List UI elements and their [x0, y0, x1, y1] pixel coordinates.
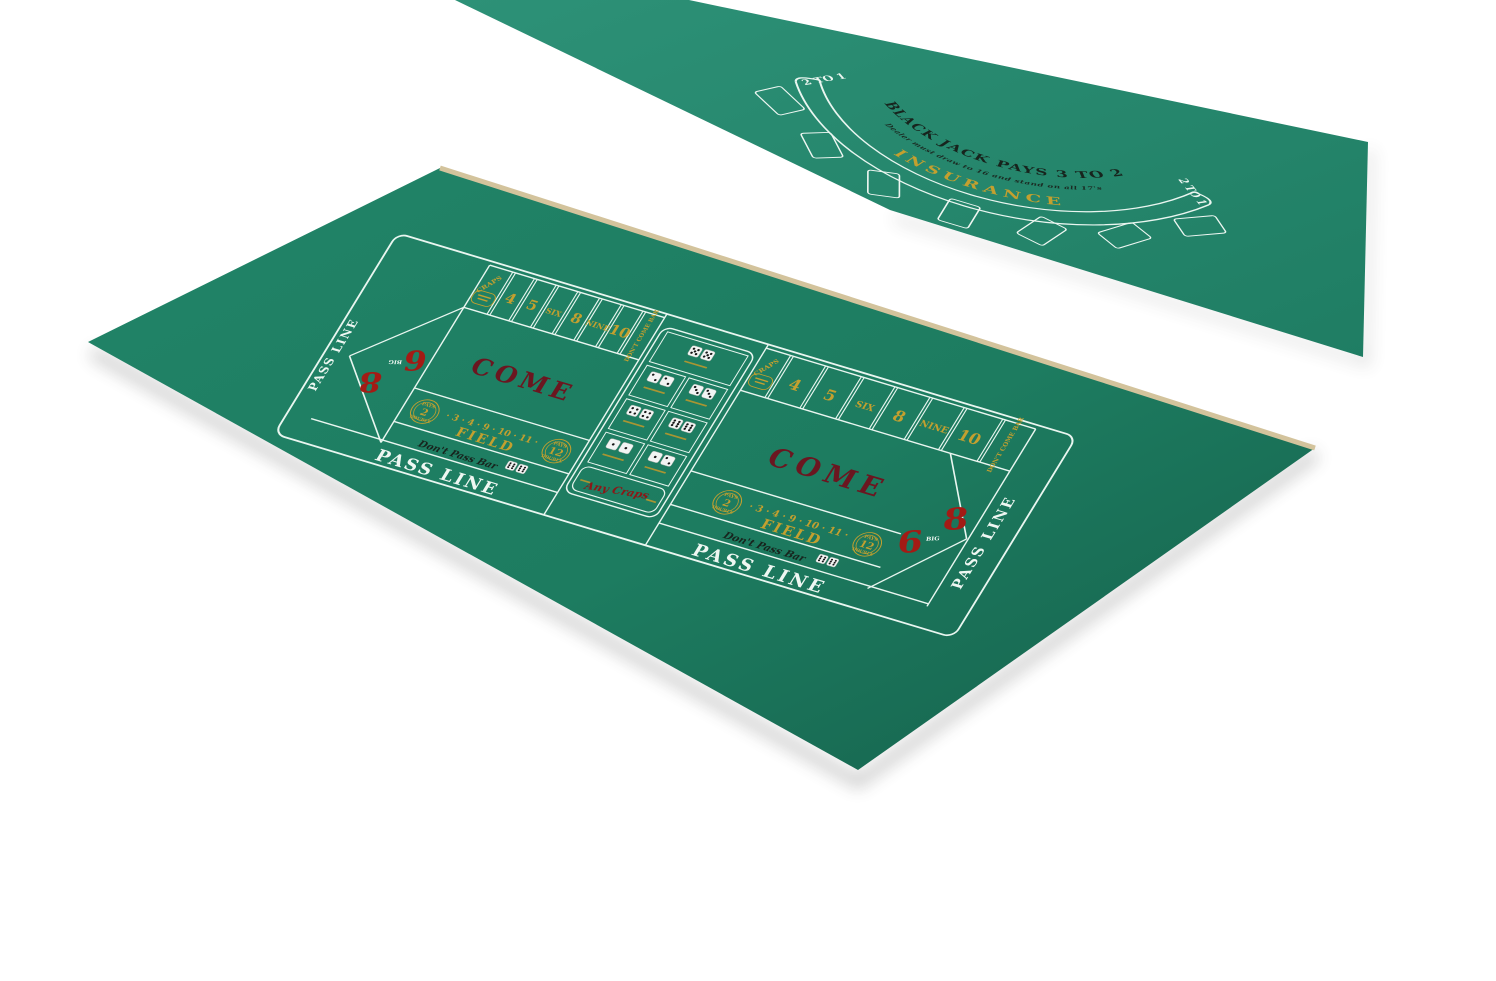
big-label: BIG: [388, 358, 403, 364]
mat-photo-canvas: BLACK JACK PAYS 3 TO 2 Dealer must draw …: [0, 0, 1496, 981]
big-label: BIG: [925, 537, 939, 543]
big-six: 6: [895, 524, 925, 560]
big-eight: 8: [941, 501, 971, 537]
product-photo-blackjack-craps-mat: BLACK JACK PAYS 3 TO 2 Dealer must draw …: [0, 0, 1496, 981]
